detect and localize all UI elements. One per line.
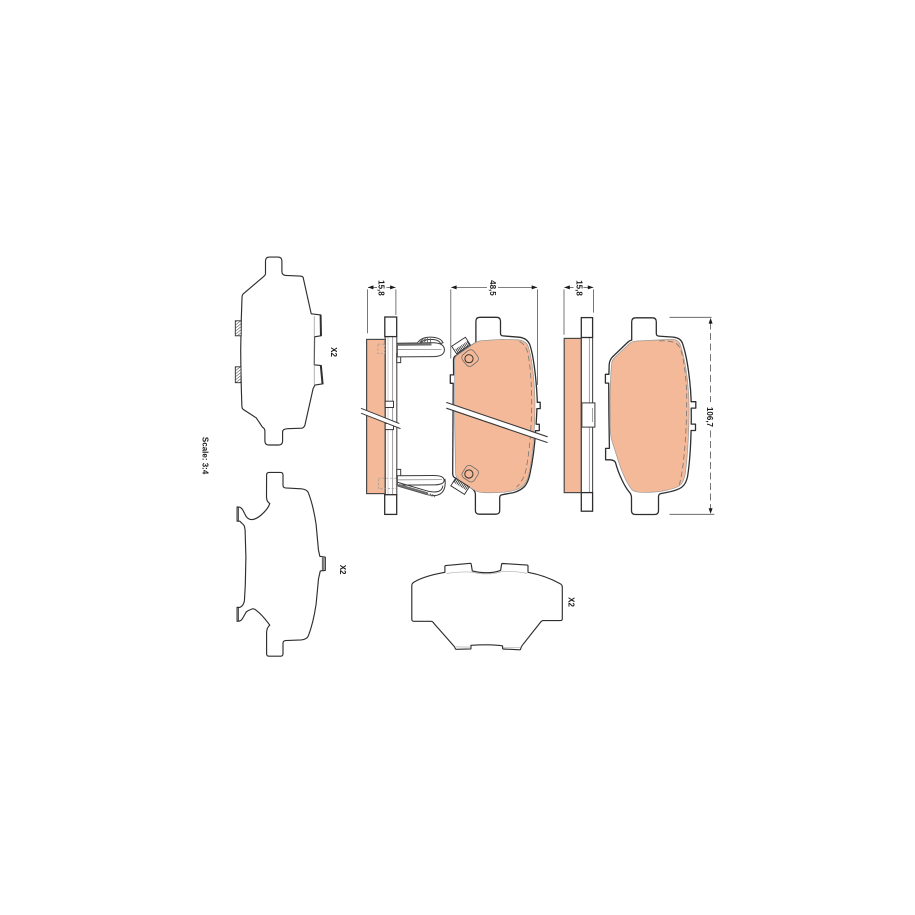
- svg-text:15,8: 15,8: [377, 280, 386, 296]
- svg-text:106,7: 106,7: [705, 407, 714, 428]
- svg-text:X2: X2: [329, 347, 338, 357]
- svg-text:X2: X2: [338, 565, 347, 575]
- svg-text:X2: X2: [567, 597, 576, 607]
- svg-text:Scale: 3:4: Scale: 3:4: [201, 437, 210, 475]
- svg-text:15,8: 15,8: [574, 280, 583, 296]
- svg-text:48,5: 48,5: [488, 280, 497, 296]
